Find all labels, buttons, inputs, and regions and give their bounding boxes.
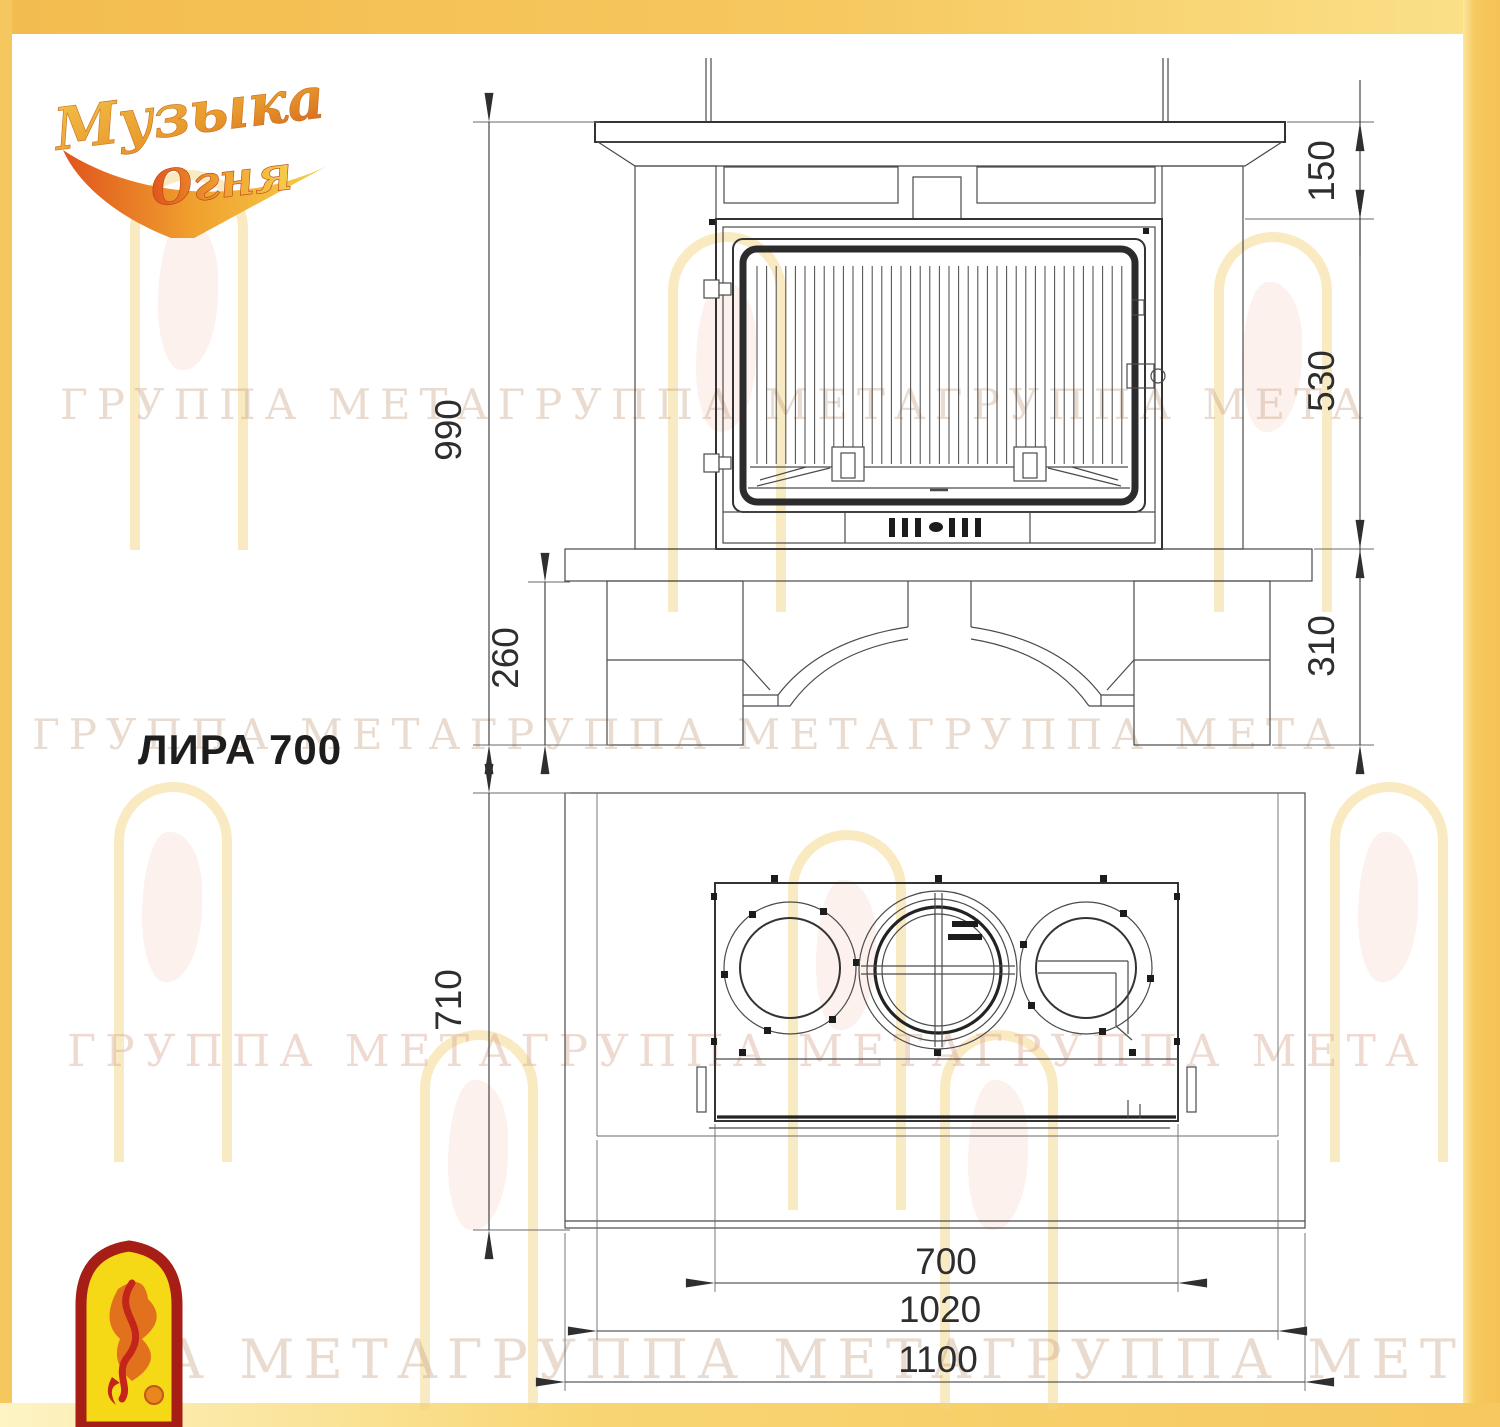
plan-hidden-base-outline <box>597 793 1278 1136</box>
extension-lines-front <box>473 122 1374 745</box>
chimney-stubs <box>706 58 1168 122</box>
vent-slots <box>889 518 981 537</box>
plan-view-drawing: 710 700 1020 1100 <box>428 793 1305 1391</box>
front-elevation-drawing: 990 260 150 530 310 <box>428 58 1374 745</box>
dim-150: 150 <box>1301 140 1342 202</box>
air-vent-strip <box>723 512 1155 543</box>
front-dimensions: 990 260 150 530 310 <box>428 80 1360 745</box>
plan-firebox-body <box>697 875 1196 1128</box>
logo-word-2: Огня <box>148 145 296 218</box>
door-hinges <box>704 280 731 472</box>
dim-1100: 1100 <box>898 1339 978 1380</box>
dim-530: 530 <box>1301 350 1342 412</box>
plan-right-outlet <box>1020 902 1154 1040</box>
mantel-shelf <box>595 122 1285 166</box>
model-title: ЛИРА 700 <box>138 726 342 774</box>
firebox-floor <box>748 467 1130 490</box>
dim-310: 310 <box>1301 615 1342 677</box>
dim-260: 260 <box>485 627 526 689</box>
firebird-sun <box>145 1386 163 1404</box>
dim-990: 990 <box>428 399 469 461</box>
firebox-insert <box>704 219 1165 549</box>
base-arch <box>743 581 1134 706</box>
dim-1020: 1020 <box>899 1289 981 1330</box>
dim-710: 710 <box>428 969 469 1031</box>
frieze-panels <box>724 167 1155 219</box>
dim-700: 700 <box>915 1241 977 1282</box>
firebird-logo <box>72 1237 186 1427</box>
plan-dimensions: 710 700 1020 1100 <box>428 793 1305 1382</box>
page: { "title": "ЛИРА 700", "brand_logo": { "… <box>0 0 1500 1427</box>
bench-slab <box>565 549 1312 581</box>
brand-logo: Музыка Огня <box>35 38 345 238</box>
right-pillar <box>1162 166 1243 549</box>
firebox-glass-hatching <box>757 266 1122 464</box>
plan-flue-collar <box>859 891 1017 1049</box>
left-pillar <box>635 166 716 549</box>
plan-left-outlet <box>721 902 860 1034</box>
base-feet <box>607 581 1270 745</box>
